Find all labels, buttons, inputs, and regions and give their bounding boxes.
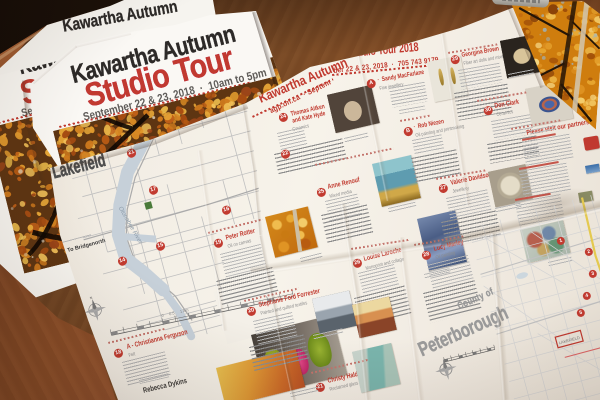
svg-text:LAKEFIELD: LAKEFIELD	[558, 335, 580, 345]
svg-text:N: N	[89, 296, 93, 301]
